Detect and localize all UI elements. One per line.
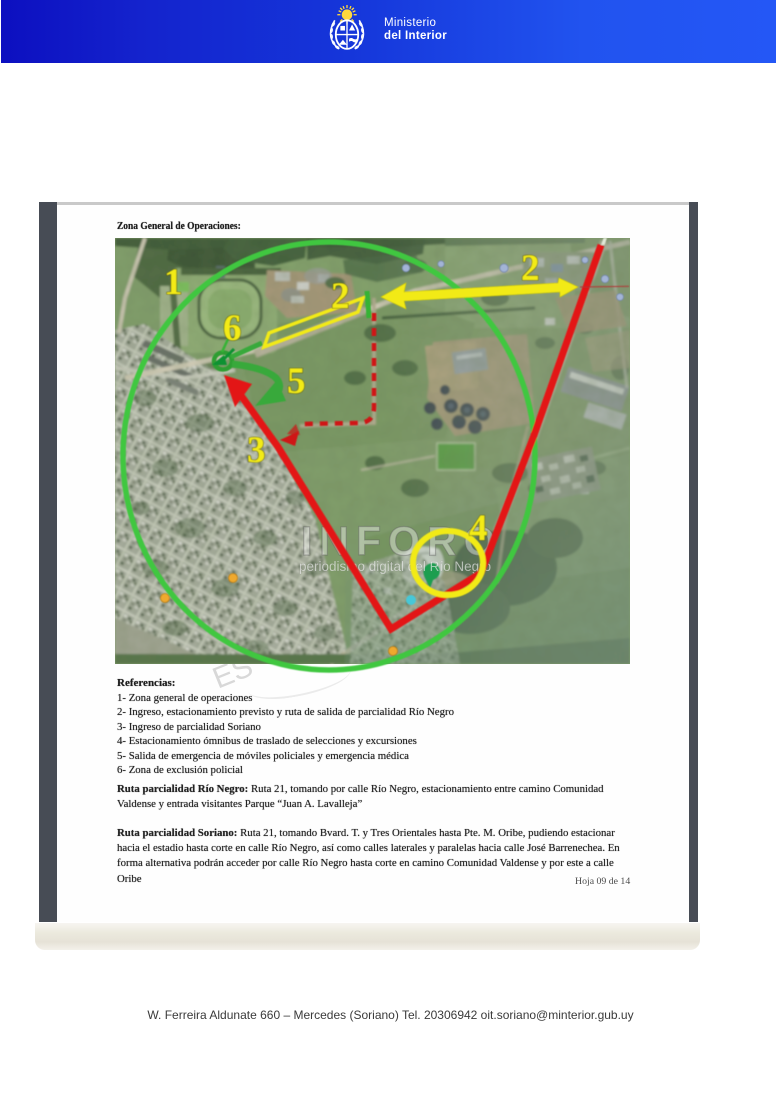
svg-text:1: 1 — [164, 262, 183, 303]
svg-text:periodismo digital del Río Neg: periodismo digital del Río Negro — [299, 559, 491, 574]
svg-text:4: 4 — [469, 508, 488, 549]
svg-text:2: 2 — [331, 276, 350, 317]
svg-text:3: 3 — [247, 430, 266, 471]
svg-text:5: 5 — [287, 361, 306, 402]
svg-text:2: 2 — [521, 248, 540, 289]
svg-text:6: 6 — [223, 308, 242, 349]
